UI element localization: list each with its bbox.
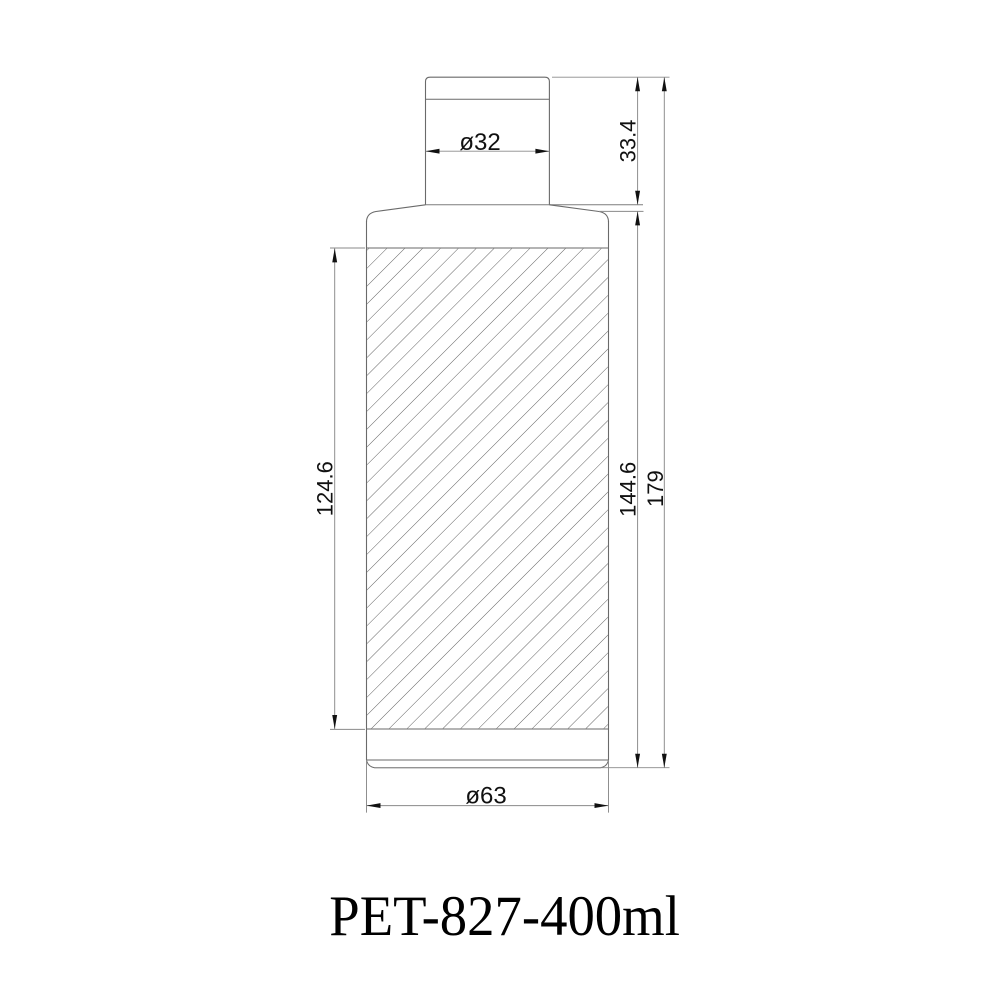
svg-text:33.4: 33.4 xyxy=(616,120,641,163)
svg-text:ø63: ø63 xyxy=(465,783,506,810)
svg-text:124.6: 124.6 xyxy=(313,461,338,516)
svg-text:179: 179 xyxy=(643,470,668,507)
svg-text:ø32: ø32 xyxy=(459,129,500,156)
svg-text:144.6: 144.6 xyxy=(616,462,641,517)
